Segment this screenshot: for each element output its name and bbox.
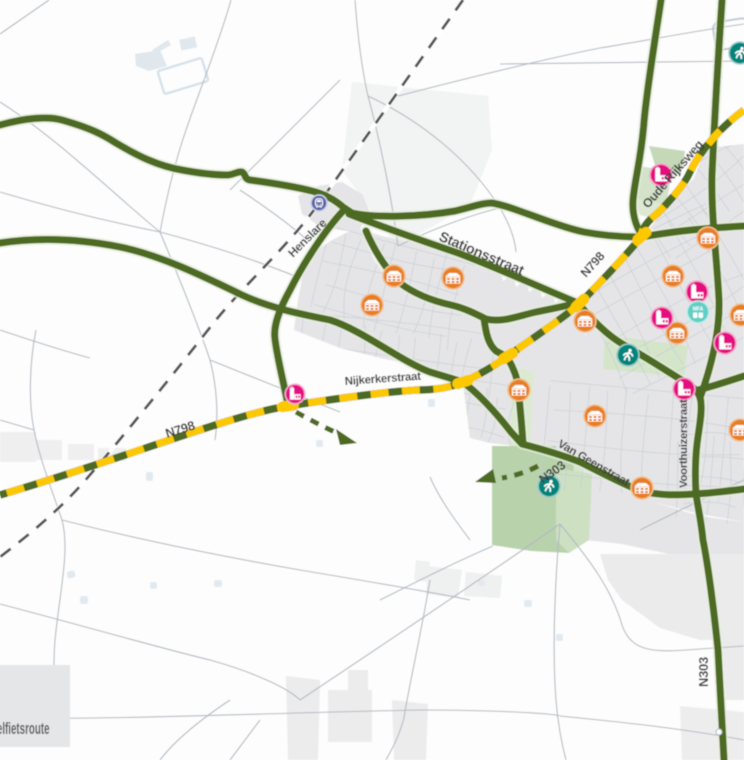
svg-text:snelfietsroute: snelfietsroute xyxy=(0,719,50,738)
svg-text:MFA: MFA xyxy=(693,306,704,312)
svg-text:N303: N303 xyxy=(696,657,711,687)
svg-text:Voorthuizerstraat: Voorthuizerstraat xyxy=(678,399,690,488)
